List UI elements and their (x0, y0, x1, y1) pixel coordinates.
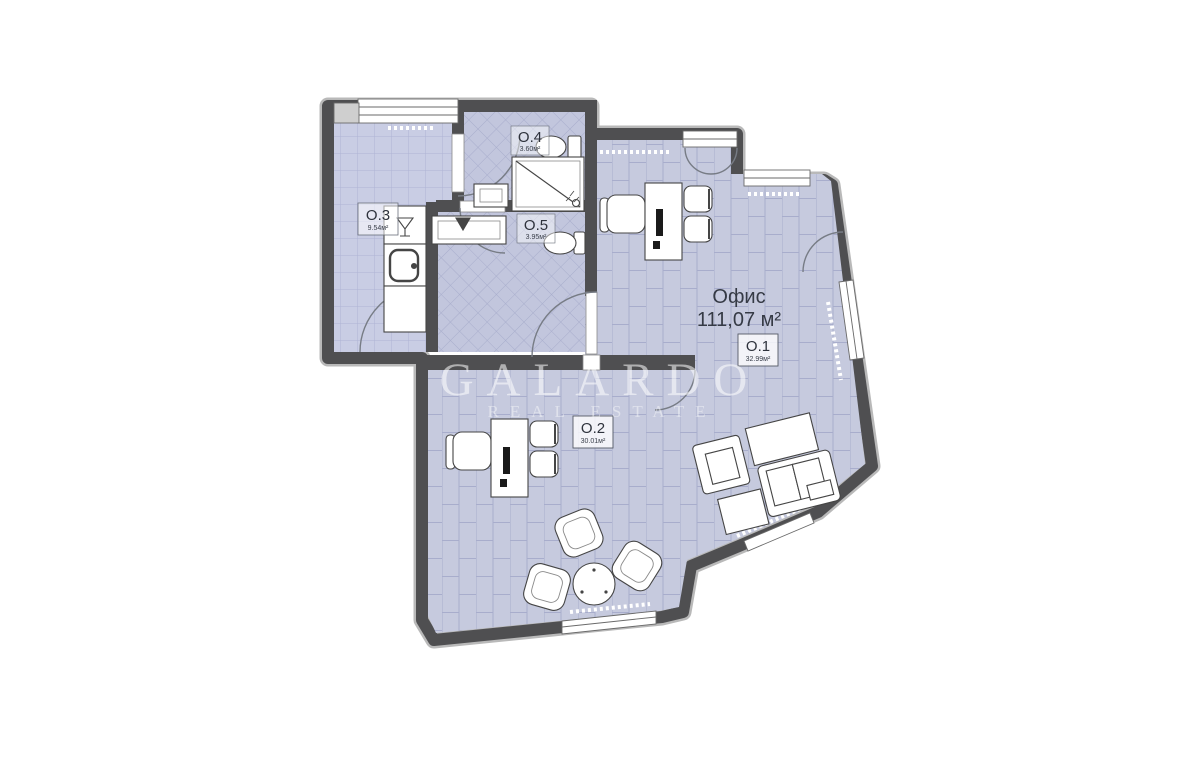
room-id-o2: O.2 (581, 420, 605, 437)
visitor-chair (684, 186, 712, 212)
shower-o4 (512, 157, 584, 211)
keyboard (653, 241, 660, 249)
visitor-chair (530, 421, 558, 447)
room-tag-o3: O.3 9.54м² (358, 203, 398, 235)
desk (645, 183, 682, 260)
window-o3-top (358, 99, 458, 123)
room-area-o5: 3.95м² (526, 234, 547, 241)
sink-o4 (474, 184, 508, 207)
visitor-chair (530, 451, 558, 477)
monitor (503, 447, 510, 474)
wall-o4-o5-stub (436, 200, 460, 212)
room-tag-o5: O.5 3.95м² (517, 214, 555, 243)
floor-plan-page: Офис 111,07 м² O.1 32.99м² O.2 30.01м² O… (0, 0, 1200, 773)
room-tag-o4: O.4 3.60м² (511, 126, 549, 155)
room-area-o2: 30.01м² (581, 438, 606, 445)
floor-plan-drawing: Офис 111,07 м² O.1 32.99м² O.2 30.01м² O… (0, 0, 1200, 773)
room-area-o3: 9.54м² (368, 225, 389, 232)
monitor (656, 209, 663, 236)
balcony-door-top (683, 131, 737, 147)
watermark-brand: GALARDO (440, 354, 761, 406)
door-leaf-corridor (586, 292, 597, 354)
window-balcony-step (744, 170, 810, 186)
main-label-name: Офис (712, 286, 765, 308)
room-id-o5: O.5 (524, 217, 548, 234)
main-label-area: 111,07 м² (697, 309, 782, 331)
pillar-top-left (334, 103, 359, 123)
room-id-o4: O.4 (518, 129, 542, 146)
vanity-o5 (432, 216, 506, 244)
kitchen-cabinet-bottom (384, 286, 426, 332)
room-id-o1: O.1 (746, 338, 770, 355)
office-chair (453, 432, 491, 470)
office-chair (607, 195, 645, 233)
room-area-o4: 3.60м² (520, 146, 541, 153)
keyboard (500, 479, 507, 487)
room-id-o3: O.3 (366, 207, 390, 224)
watermark-tagline: REAL ESTATE (487, 402, 716, 421)
wall-bath-block-right (585, 100, 597, 296)
visitor-chair (684, 216, 712, 242)
kitchen-faucet (412, 264, 417, 269)
door-leaf-o4 (452, 134, 464, 192)
watermark: GALARDO REAL ESTATE (440, 354, 761, 421)
